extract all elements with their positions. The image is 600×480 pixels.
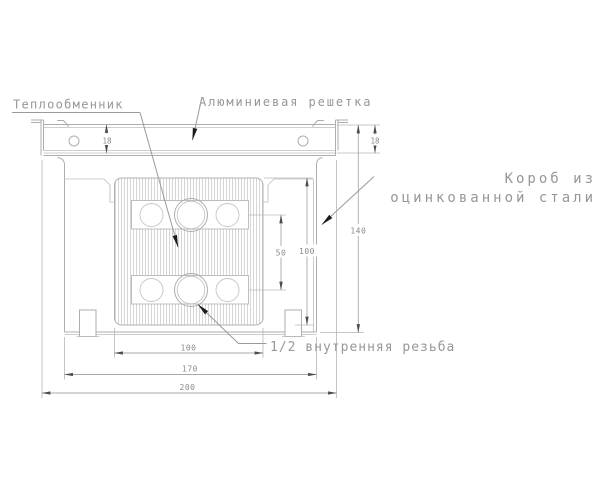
label-grille: Алюминиевая решетка <box>199 95 372 109</box>
dim-ports-spacing: 50 <box>273 215 290 290</box>
grille-left-flange <box>31 120 44 156</box>
dim-grille-height-right: 18 <box>337 125 383 153</box>
port-band-top <box>132 201 249 230</box>
foot-left <box>80 310 97 337</box>
dim-text-100-bottom: 100 <box>181 343 197 352</box>
dim-overall-height: 140 <box>320 125 370 333</box>
aluminum-grille <box>31 120 348 156</box>
port-band-bottom <box>132 276 249 305</box>
dim-text-18-left: 18 <box>102 136 112 145</box>
heat-exchanger <box>115 178 287 325</box>
grille-hole-right <box>298 136 308 146</box>
dim-text-140: 140 <box>350 227 366 236</box>
box-left-hook <box>57 121 69 127</box>
dim-exchanger-height: 100 <box>264 178 318 325</box>
box-right-ledge <box>263 179 314 202</box>
leader-grille <box>193 97 203 140</box>
dim-grille-height-left: 18 <box>99 125 115 154</box>
leader-box <box>322 177 374 225</box>
technical-drawing: 18 18 140 100 50 <box>0 0 600 480</box>
label-thread: 1/2 внутренняя резьба <box>270 340 455 355</box>
label-heat-exchanger: Теплообменник <box>13 98 124 112</box>
box-left-ledge <box>65 179 115 202</box>
box-left-wall <box>58 158 65 333</box>
drawing-canvas: 18 18 140 100 50 <box>0 0 600 480</box>
dim-text-200: 200 <box>180 383 196 392</box>
dim-text-50: 50 <box>276 248 287 257</box>
dim-text-170: 170 <box>182 365 198 374</box>
foot-right <box>285 310 302 337</box>
dim-text-100-right: 100 <box>299 247 315 256</box>
label-box-line1: Короб из <box>505 171 596 187</box>
label-box-line2: оцинкованной стали <box>390 190 596 206</box>
dim-text-18-right: 18 <box>370 137 380 146</box>
grille-hole-left <box>69 136 79 146</box>
box-right-hook <box>313 121 325 127</box>
